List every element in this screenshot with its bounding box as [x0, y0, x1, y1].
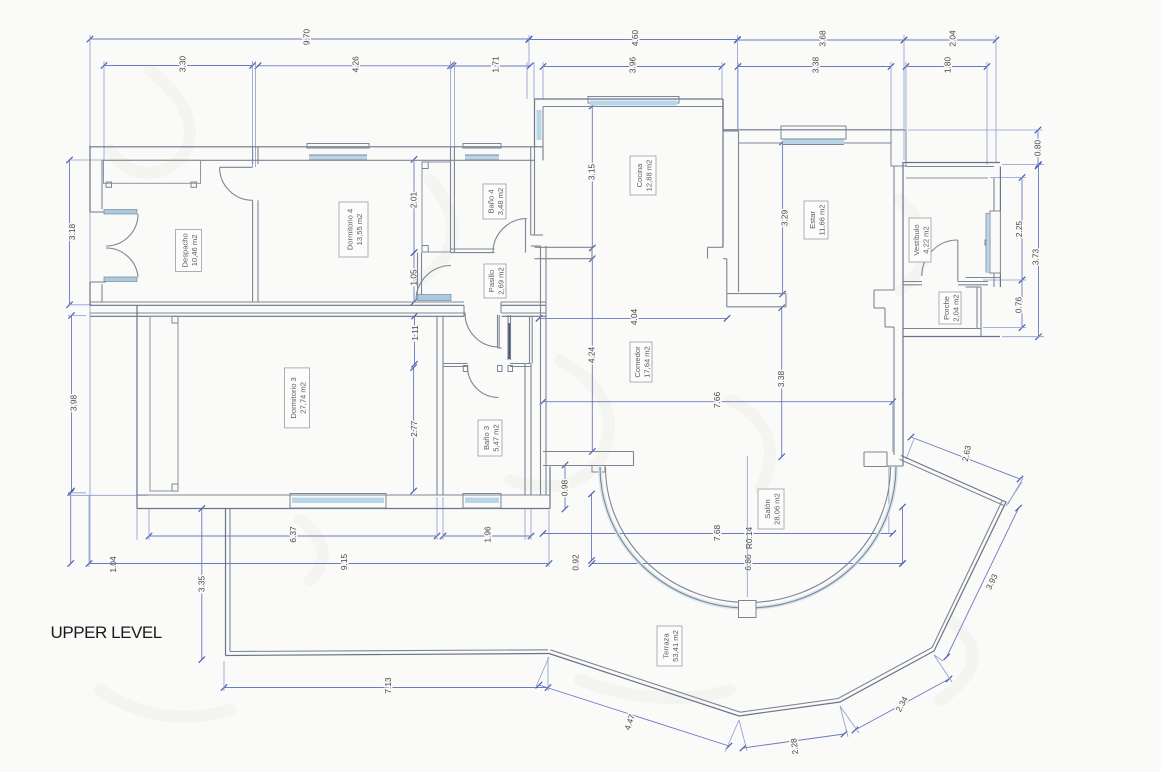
svg-text:1.05: 1.05 [408, 269, 418, 286]
svg-text:4.60: 4.60 [630, 30, 640, 47]
svg-text:0.92: 0.92 [570, 554, 580, 571]
svg-text:11,66 m2: 11,66 m2 [818, 204, 827, 235]
svg-text:2,69 m2: 2,69 m2 [497, 267, 506, 294]
svg-text:2.77: 2.77 [409, 420, 419, 437]
svg-text:0.98: 0.98 [559, 480, 569, 497]
svg-text:Comedor: Comedor [633, 346, 642, 378]
svg-text:0.80: 0.80 [1032, 140, 1042, 157]
svg-text:0.76: 0.76 [1013, 297, 1023, 314]
svg-text:Dormitorio 3: Dormitorio 3 [289, 377, 298, 418]
svg-text:27,74 m2: 27,74 m2 [299, 382, 308, 414]
svg-text:6.37: 6.37 [288, 526, 298, 543]
svg-text:9.70: 9.70 [301, 29, 311, 46]
svg-text:6.86: 6.86 [743, 554, 753, 571]
svg-text:13,55 m2: 13,55 m2 [355, 214, 364, 246]
svg-text:3.98: 3.98 [68, 395, 78, 412]
svg-text:3,48 m2: 3,48 m2 [496, 188, 505, 215]
svg-text:4,22 m2: 4,22 m2 [922, 226, 931, 253]
svg-text:9.15: 9.15 [339, 554, 349, 571]
svg-text:2,04 m2: 2,04 m2 [952, 294, 961, 321]
svg-text:3.29: 3.29 [779, 210, 789, 227]
svg-text:12,88 m2: 12,88 m2 [645, 160, 654, 192]
svg-text:1.80: 1.80 [942, 57, 952, 74]
svg-text:7.68: 7.68 [712, 525, 722, 542]
svg-text:Baño 4: Baño 4 [486, 189, 495, 213]
svg-text:3.38: 3.38 [776, 371, 786, 388]
svg-text:7.66: 7.66 [712, 392, 722, 409]
svg-text:3.38: 3.38 [810, 57, 820, 74]
svg-text:1.04: 1.04 [108, 556, 118, 573]
svg-text:Baño 3: Baño 3 [482, 426, 491, 450]
svg-text:10,46 m2: 10,46 m2 [190, 235, 199, 267]
svg-text:5,47 m2: 5,47 m2 [492, 424, 501, 451]
svg-text:1.11: 1.11 [410, 325, 420, 341]
svg-text:3.15: 3.15 [586, 164, 596, 181]
svg-text:28,06 m2: 28,06 m2 [773, 493, 782, 525]
svg-text:2.01: 2.01 [408, 192, 418, 209]
svg-text:Pasillo: Pasillo [487, 270, 496, 292]
svg-text:4.24: 4.24 [587, 347, 597, 364]
svg-text:3.30: 3.30 [177, 56, 187, 73]
svg-text:1.71: 1.71 [490, 56, 500, 73]
svg-text:1.96: 1.96 [482, 526, 492, 543]
svg-text:Despacho: Despacho [180, 233, 189, 267]
svg-text:7.13: 7.13 [383, 677, 393, 694]
svg-text:Porche: Porche [942, 296, 951, 320]
svg-text:3.68: 3.68 [817, 30, 827, 47]
svg-text:Terraza: Terraza [661, 633, 670, 659]
svg-text:3.18: 3.18 [67, 224, 77, 241]
svg-text:R0.14: R0.14 [744, 527, 754, 550]
svg-text:2.28: 2.28 [788, 737, 800, 755]
svg-text:17,64 m2: 17,64 m2 [643, 346, 652, 378]
svg-text:3.96: 3.96 [627, 57, 637, 74]
svg-text:Vestíbulo: Vestíbulo [912, 224, 921, 255]
svg-text:4.04: 4.04 [629, 309, 639, 326]
svg-text:4.26: 4.26 [350, 56, 360, 73]
svg-text:3.73: 3.73 [1030, 249, 1040, 266]
svg-text:UPPER LEVEL: UPPER LEVEL [51, 623, 162, 642]
svg-text:2.25: 2.25 [1014, 221, 1024, 238]
svg-text:Salón: Salón [763, 499, 772, 518]
svg-text:3.35: 3.35 [197, 576, 207, 593]
svg-text:2.04: 2.04 [947, 30, 957, 47]
svg-text:53,41 m2: 53,41 m2 [671, 630, 680, 662]
svg-text:Dormitorio 4: Dormitorio 4 [345, 209, 354, 250]
svg-text:Estar: Estar [808, 211, 817, 229]
svg-text:Cocina: Cocina [635, 163, 644, 187]
